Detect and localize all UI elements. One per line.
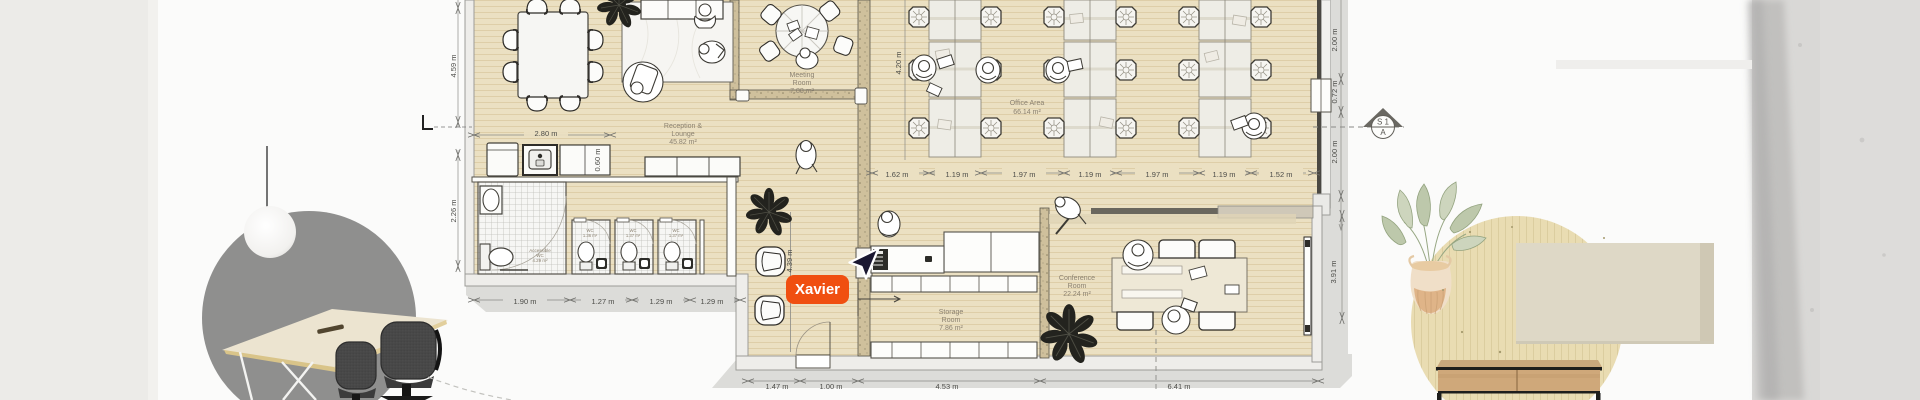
svg-text:1.29 m: 1.29 m [650, 297, 673, 306]
svg-text:1.19 m: 1.19 m [1213, 170, 1236, 179]
svg-text:1.97 m: 1.97 m [1013, 170, 1036, 179]
svg-text:4.29 m²: 4.29 m² [532, 258, 548, 263]
svg-text:Office Area: Office Area [1010, 100, 1045, 107]
svg-text:45.82 m²: 45.82 m² [669, 139, 697, 146]
svg-text:2.00 m: 2.00 m [1330, 141, 1339, 164]
svg-text:Lounge: Lounge [671, 131, 694, 138]
svg-text:Xavier: Xavier [795, 281, 840, 298]
svg-text:1.29 m: 1.29 m [701, 297, 724, 306]
svg-text:0.72 m: 0.72 m [1330, 81, 1339, 104]
svg-text:4.53 m: 4.53 m [936, 382, 959, 391]
svg-text:Room: Room [1068, 283, 1087, 290]
svg-text:66.14 m²: 66.14 m² [1013, 109, 1041, 116]
svg-text:S 1: S 1 [1377, 118, 1390, 127]
svg-text:6.41 m: 6.41 m [1168, 382, 1191, 391]
svg-text:7.88 m²: 7.88 m² [790, 88, 814, 95]
svg-text:1.27 m: 1.27 m [592, 297, 615, 306]
svg-text:4.59 m: 4.59 m [449, 55, 458, 78]
svg-text:4.20 m: 4.20 m [894, 52, 903, 75]
svg-text:Conference: Conference [1059, 275, 1095, 282]
svg-text:2.80 m: 2.80 m [535, 129, 558, 138]
svg-text:A: A [1380, 128, 1386, 137]
svg-text:1.90 m: 1.90 m [514, 297, 537, 306]
svg-text:Room: Room [793, 80, 812, 87]
svg-text:22.24 m²: 22.24 m² [1063, 291, 1091, 298]
svg-text:1.00 m: 1.00 m [820, 382, 843, 391]
svg-text:1.19 m: 1.19 m [946, 170, 969, 179]
svg-text:0.60 m: 0.60 m [593, 149, 602, 172]
svg-text:1.52 m: 1.52 m [1270, 170, 1293, 179]
svg-text:Room: Room [942, 317, 961, 324]
svg-text:Meeting: Meeting [790, 72, 815, 79]
svg-text:1.97 m: 1.97 m [1146, 170, 1169, 179]
svg-text:1.62 m: 1.62 m [886, 170, 909, 179]
svg-text:Storage: Storage [939, 309, 964, 316]
svg-text:1.47 m: 1.47 m [766, 382, 789, 391]
svg-text:1.37 m²: 1.37 m² [669, 233, 684, 238]
svg-text:1.19 m: 1.19 m [1079, 170, 1102, 179]
svg-text:2.00 m: 2.00 m [1330, 29, 1339, 52]
svg-text:3.91 m: 3.91 m [1329, 261, 1338, 284]
svg-text:1.37 m²: 1.37 m² [626, 233, 641, 238]
svg-text:1.36 m²: 1.36 m² [583, 233, 598, 238]
svg-text:Reception &: Reception & [664, 123, 702, 130]
svg-text:2.26 m: 2.26 m [449, 200, 458, 223]
svg-text:4.39 m: 4.39 m [785, 250, 794, 273]
svg-text:7.86 m²: 7.86 m² [939, 325, 963, 332]
